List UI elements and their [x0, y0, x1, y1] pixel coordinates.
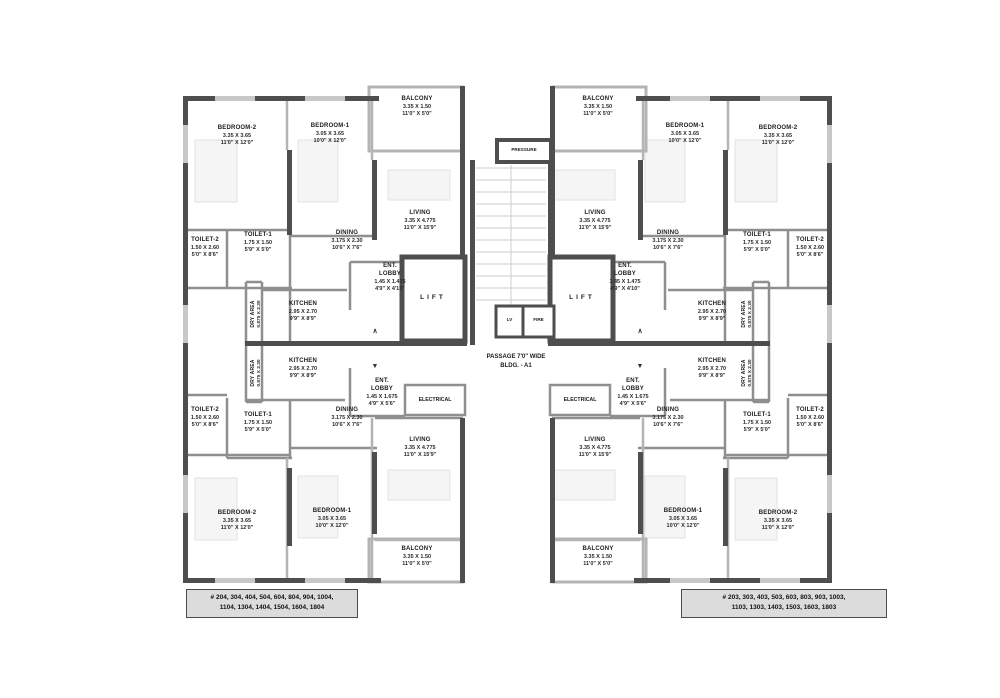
room-label-tl-living: LIVING 3.35 X 4.775 11'0" X 15'9": [375, 210, 465, 232]
room-label-br-toilet2: TOILET-2 1.50 X 2.60 5'0" X 8'6": [786, 407, 834, 429]
room-label-tl-kitchen: KITCHEN 2.95 X 2.70 9'9" X 8'9": [266, 301, 340, 323]
lift-left-label: LIFT: [403, 294, 463, 301]
room-label-tl-dry-area: DRY AREA 0.875 X 2.30: [250, 283, 274, 345]
room-label-tr-toilet1: TOILET-1 1.75 X 1.50 5'9" X 5'0": [727, 232, 787, 254]
room-label-bl-bedroom1: BEDROOM-1 3.05 X 3.65 10'0" X 12'0": [287, 508, 377, 530]
lv-label: LV: [496, 317, 523, 322]
room-label-br-ent-lobby: ENT. LOBBY 1.45 X 1.675 4'9" X 5'6": [601, 378, 665, 408]
room-label-bl-balcony: BALCONY 3.35 X 1.50 11'0" X 5'0": [372, 546, 462, 568]
room-label-bl-toilet1: TOILET-1 1.75 X 1.50 5'9" X 5'0": [228, 412, 288, 434]
room-label-br-toilet1: TOILET-1 1.75 X 1.50 5'9" X 5'0": [727, 412, 787, 434]
room-label-br-living: LIVING 3.35 X 4.775 11'0" X 15'9": [550, 437, 640, 459]
stair-down-arrow-left: ▼: [368, 363, 382, 370]
room-label-tr-bedroom1: BEDROOM-1 3.05 X 3.65 10'0" X 12'0": [640, 123, 730, 145]
room-label-tl-ent-lobby: ENT. LOBBY 1.45 X 1.475 4'9" X 4'10": [358, 263, 422, 293]
room-label-tr-dry-area: DRY AREA 0.875 X 2.30: [741, 283, 765, 345]
room-label-tl-balcony: BALCONY 3.35 X 1.50 11'0" X 5'0": [372, 96, 462, 118]
room-label-bl-kitchen: KITCHEN 2.95 X 2.70 9'9" X 8'9": [266, 358, 340, 380]
stair-down-arrow-right: ▼: [633, 363, 647, 370]
passage-label: PASSAGE 7'0" WIDE BLDG. - A1: [456, 353, 576, 371]
room-label-br-bedroom2: BEDROOM-2 3.35 X 3.65 11'0" X 12'0": [728, 510, 828, 532]
room-label-bl-dining: DINING 3.175 X 2.30 10'6" X 7'6": [312, 407, 382, 429]
room-label-bl-ent-lobby: ENT. LOBBY 1.45 X 1.675 4'9" X 5'6": [350, 378, 414, 408]
room-label-bl-living: LIVING 3.35 X 4.775 11'0" X 15'9": [375, 437, 465, 459]
room-label-tl-toilet2: TOILET-2 1.50 X 2.60 5'0" X 8'6": [181, 237, 229, 259]
unit-numbers-right: # 203, 303, 403, 503, 603, 803, 903, 100…: [681, 589, 887, 618]
room-label-tl-toilet1: TOILET-1 1.75 X 1.50 5'9" X 5'0": [228, 232, 288, 254]
room-label-br-bedroom1: BEDROOM-1 3.05 X 3.65 10'0" X 12'0": [638, 508, 728, 530]
room-label-tr-kitchen: KITCHEN 2.95 X 2.70 9'9" X 8'9": [675, 301, 749, 323]
room-label-bl-bedroom2: BEDROOM-2 3.35 X 3.65 11'0" X 12'0": [187, 510, 287, 532]
room-label-tr-balcony: BALCONY 3.35 X 1.50 11'0" X 5'0": [553, 96, 643, 118]
fire-label: FIRE: [523, 317, 554, 322]
room-label-tl-dining: DINING 3.175 X 2.30 10'6" X 7'6": [312, 230, 382, 252]
floor-plan-page: BEDROOM-2 3.35 X 3.65 11'0" X 12'0" BEDR…: [0, 0, 1000, 698]
room-label-tr-ent-lobby: ENT. LOBBY 1.45 X 1.475 4'9" X 4'10": [593, 263, 657, 293]
electrical-right-label: ELECTRICAL: [550, 397, 610, 403]
room-label-tr-bedroom2: BEDROOM-2 3.35 X 3.65 11'0" X 12'0": [728, 125, 828, 147]
room-label-tl-bedroom1: BEDROOM-1 3.05 X 3.65 10'0" X 12'0": [285, 123, 375, 145]
room-label-bl-toilet2: TOILET-2 1.50 X 2.60 5'0" X 8'6": [181, 407, 229, 429]
room-label-br-balcony: BALCONY 3.35 X 1.50 11'0" X 5'0": [553, 546, 643, 568]
electrical-left-label: ELECTRICAL: [405, 397, 465, 403]
room-label-br-kitchen: KITCHEN 2.95 X 2.70 9'9" X 8'9": [675, 358, 749, 380]
stair-up-arrow-left: ∧: [368, 327, 382, 335]
room-label-tr-living: LIVING 3.35 X 4.775 11'0" X 15'9": [550, 210, 640, 232]
pressure-label: PRESSURE: [497, 147, 551, 152]
room-label-br-dining: DINING 3.175 X 2.30 10'6" X 7'6": [633, 407, 703, 429]
lift-right-label: LIFT: [552, 294, 612, 301]
stair-up-arrow-right: ∧: [633, 327, 647, 335]
room-label-tr-dining: DINING 3.175 X 2.30 10'6" X 7'6": [633, 230, 703, 252]
unit-numbers-left: # 204, 304, 404, 504, 604, 804, 904, 100…: [186, 589, 358, 618]
room-label-tr-toilet2: TOILET-2 1.50 X 2.60 5'0" X 8'6": [786, 237, 834, 259]
room-label-tl-bedroom2: BEDROOM-2 3.35 X 3.65 11'0" X 12'0": [187, 125, 287, 147]
